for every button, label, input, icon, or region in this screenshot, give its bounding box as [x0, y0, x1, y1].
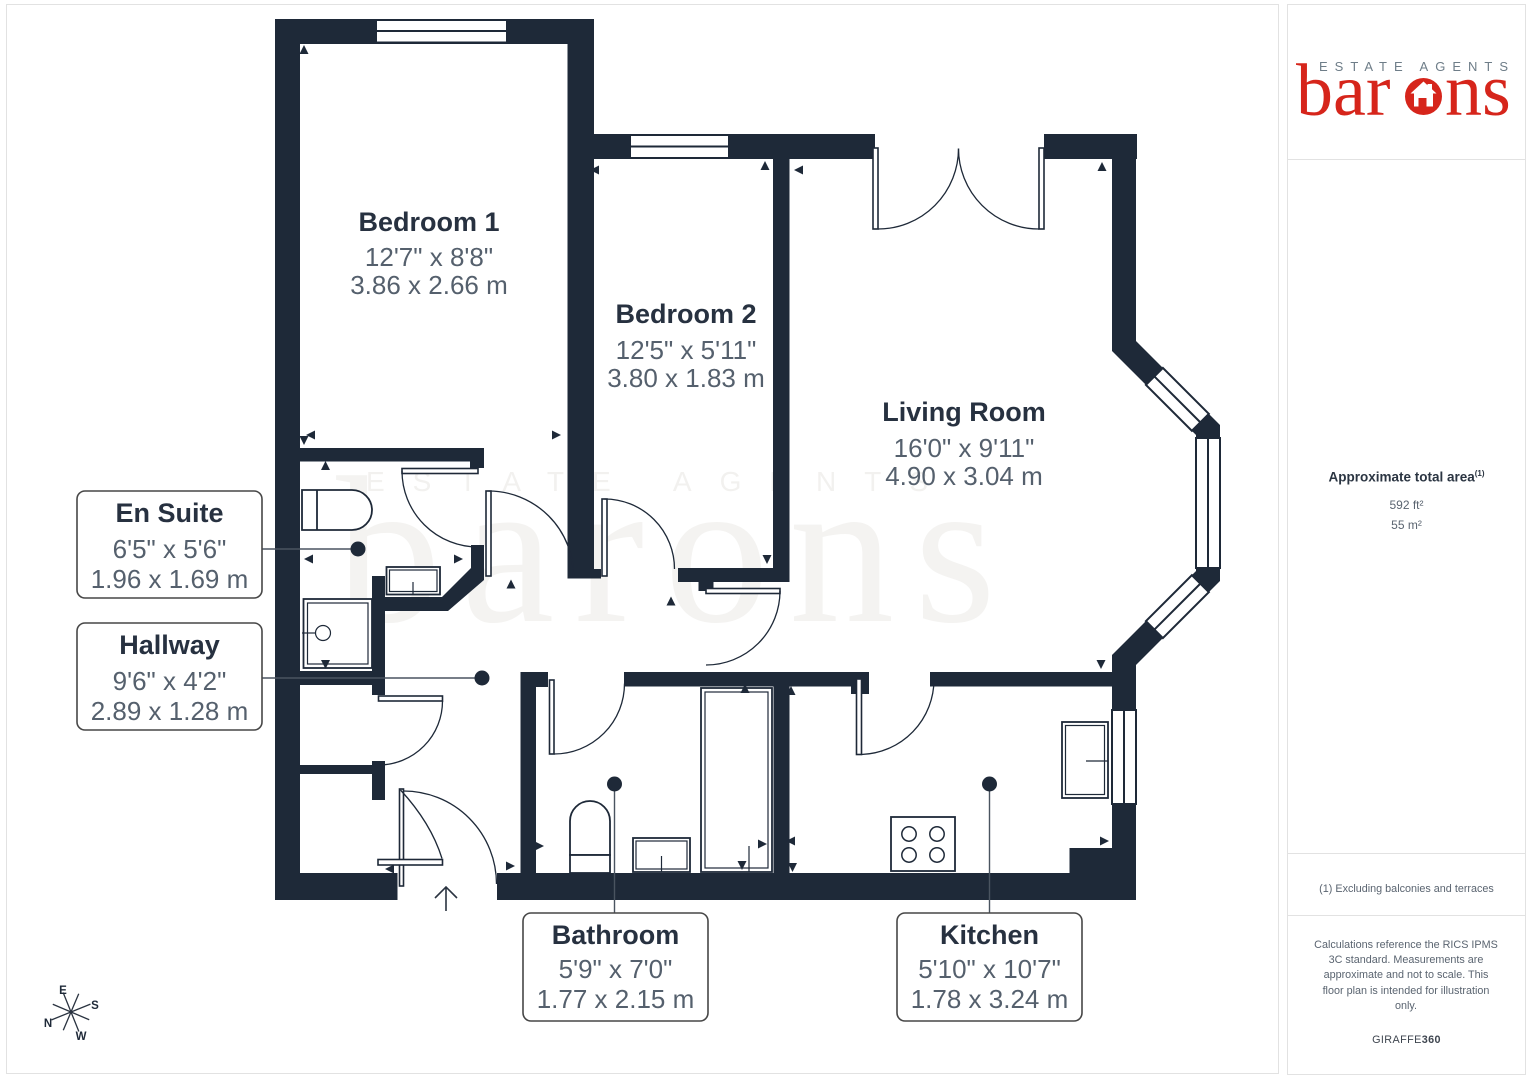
- svg-text:9'6" x 4'2": 9'6" x 4'2": [113, 666, 227, 696]
- svg-text:Bathroom: Bathroom: [552, 920, 680, 950]
- svg-text:E: E: [59, 985, 67, 997]
- svg-text:12'5" x 5'11": 12'5" x 5'11": [616, 335, 757, 365]
- svg-text:5'10" x 10'7": 5'10" x 10'7": [918, 954, 1061, 984]
- svg-text:1.78 x 3.24 m: 1.78 x 3.24 m: [911, 984, 1069, 1014]
- svg-text:3.80 x 1.83 m: 3.80 x 1.83 m: [607, 363, 765, 393]
- svg-text:1.96 x 1.69 m: 1.96 x 1.69 m: [91, 564, 249, 594]
- svg-text:S: S: [91, 1000, 99, 1012]
- svg-text:12'7" x 8'8": 12'7" x 8'8": [365, 242, 493, 272]
- svg-text:4.90 x 3.04 m: 4.90 x 3.04 m: [885, 461, 1043, 491]
- svg-text:bar: bar: [1296, 50, 1391, 132]
- svg-text:W: W: [76, 1031, 87, 1043]
- svg-text:2.89 x 1.28 m: 2.89 x 1.28 m: [91, 696, 249, 726]
- svg-text:5'9" x 7'0": 5'9" x 7'0": [559, 954, 673, 984]
- svg-text:1.77 x 2.15 m: 1.77 x 2.15 m: [537, 984, 695, 1014]
- svg-text:N: N: [44, 1018, 52, 1030]
- svg-text:Bedroom 2: Bedroom 2: [615, 299, 756, 329]
- svg-text:Bedroom 1: Bedroom 1: [358, 207, 499, 237]
- svg-text:Hallway: Hallway: [119, 630, 220, 660]
- svg-text:6'5" x 5'6": 6'5" x 5'6": [113, 534, 227, 564]
- svg-text:En Suite: En Suite: [115, 498, 223, 528]
- svg-text:Living Room: Living Room: [882, 397, 1046, 427]
- svg-text:3.86 x 2.66 m: 3.86 x 2.66 m: [350, 270, 508, 300]
- svg-text:ns: ns: [1445, 50, 1511, 132]
- svg-text:Kitchen: Kitchen: [940, 920, 1039, 950]
- svg-text:16'0" x 9'11": 16'0" x 9'11": [894, 433, 1035, 463]
